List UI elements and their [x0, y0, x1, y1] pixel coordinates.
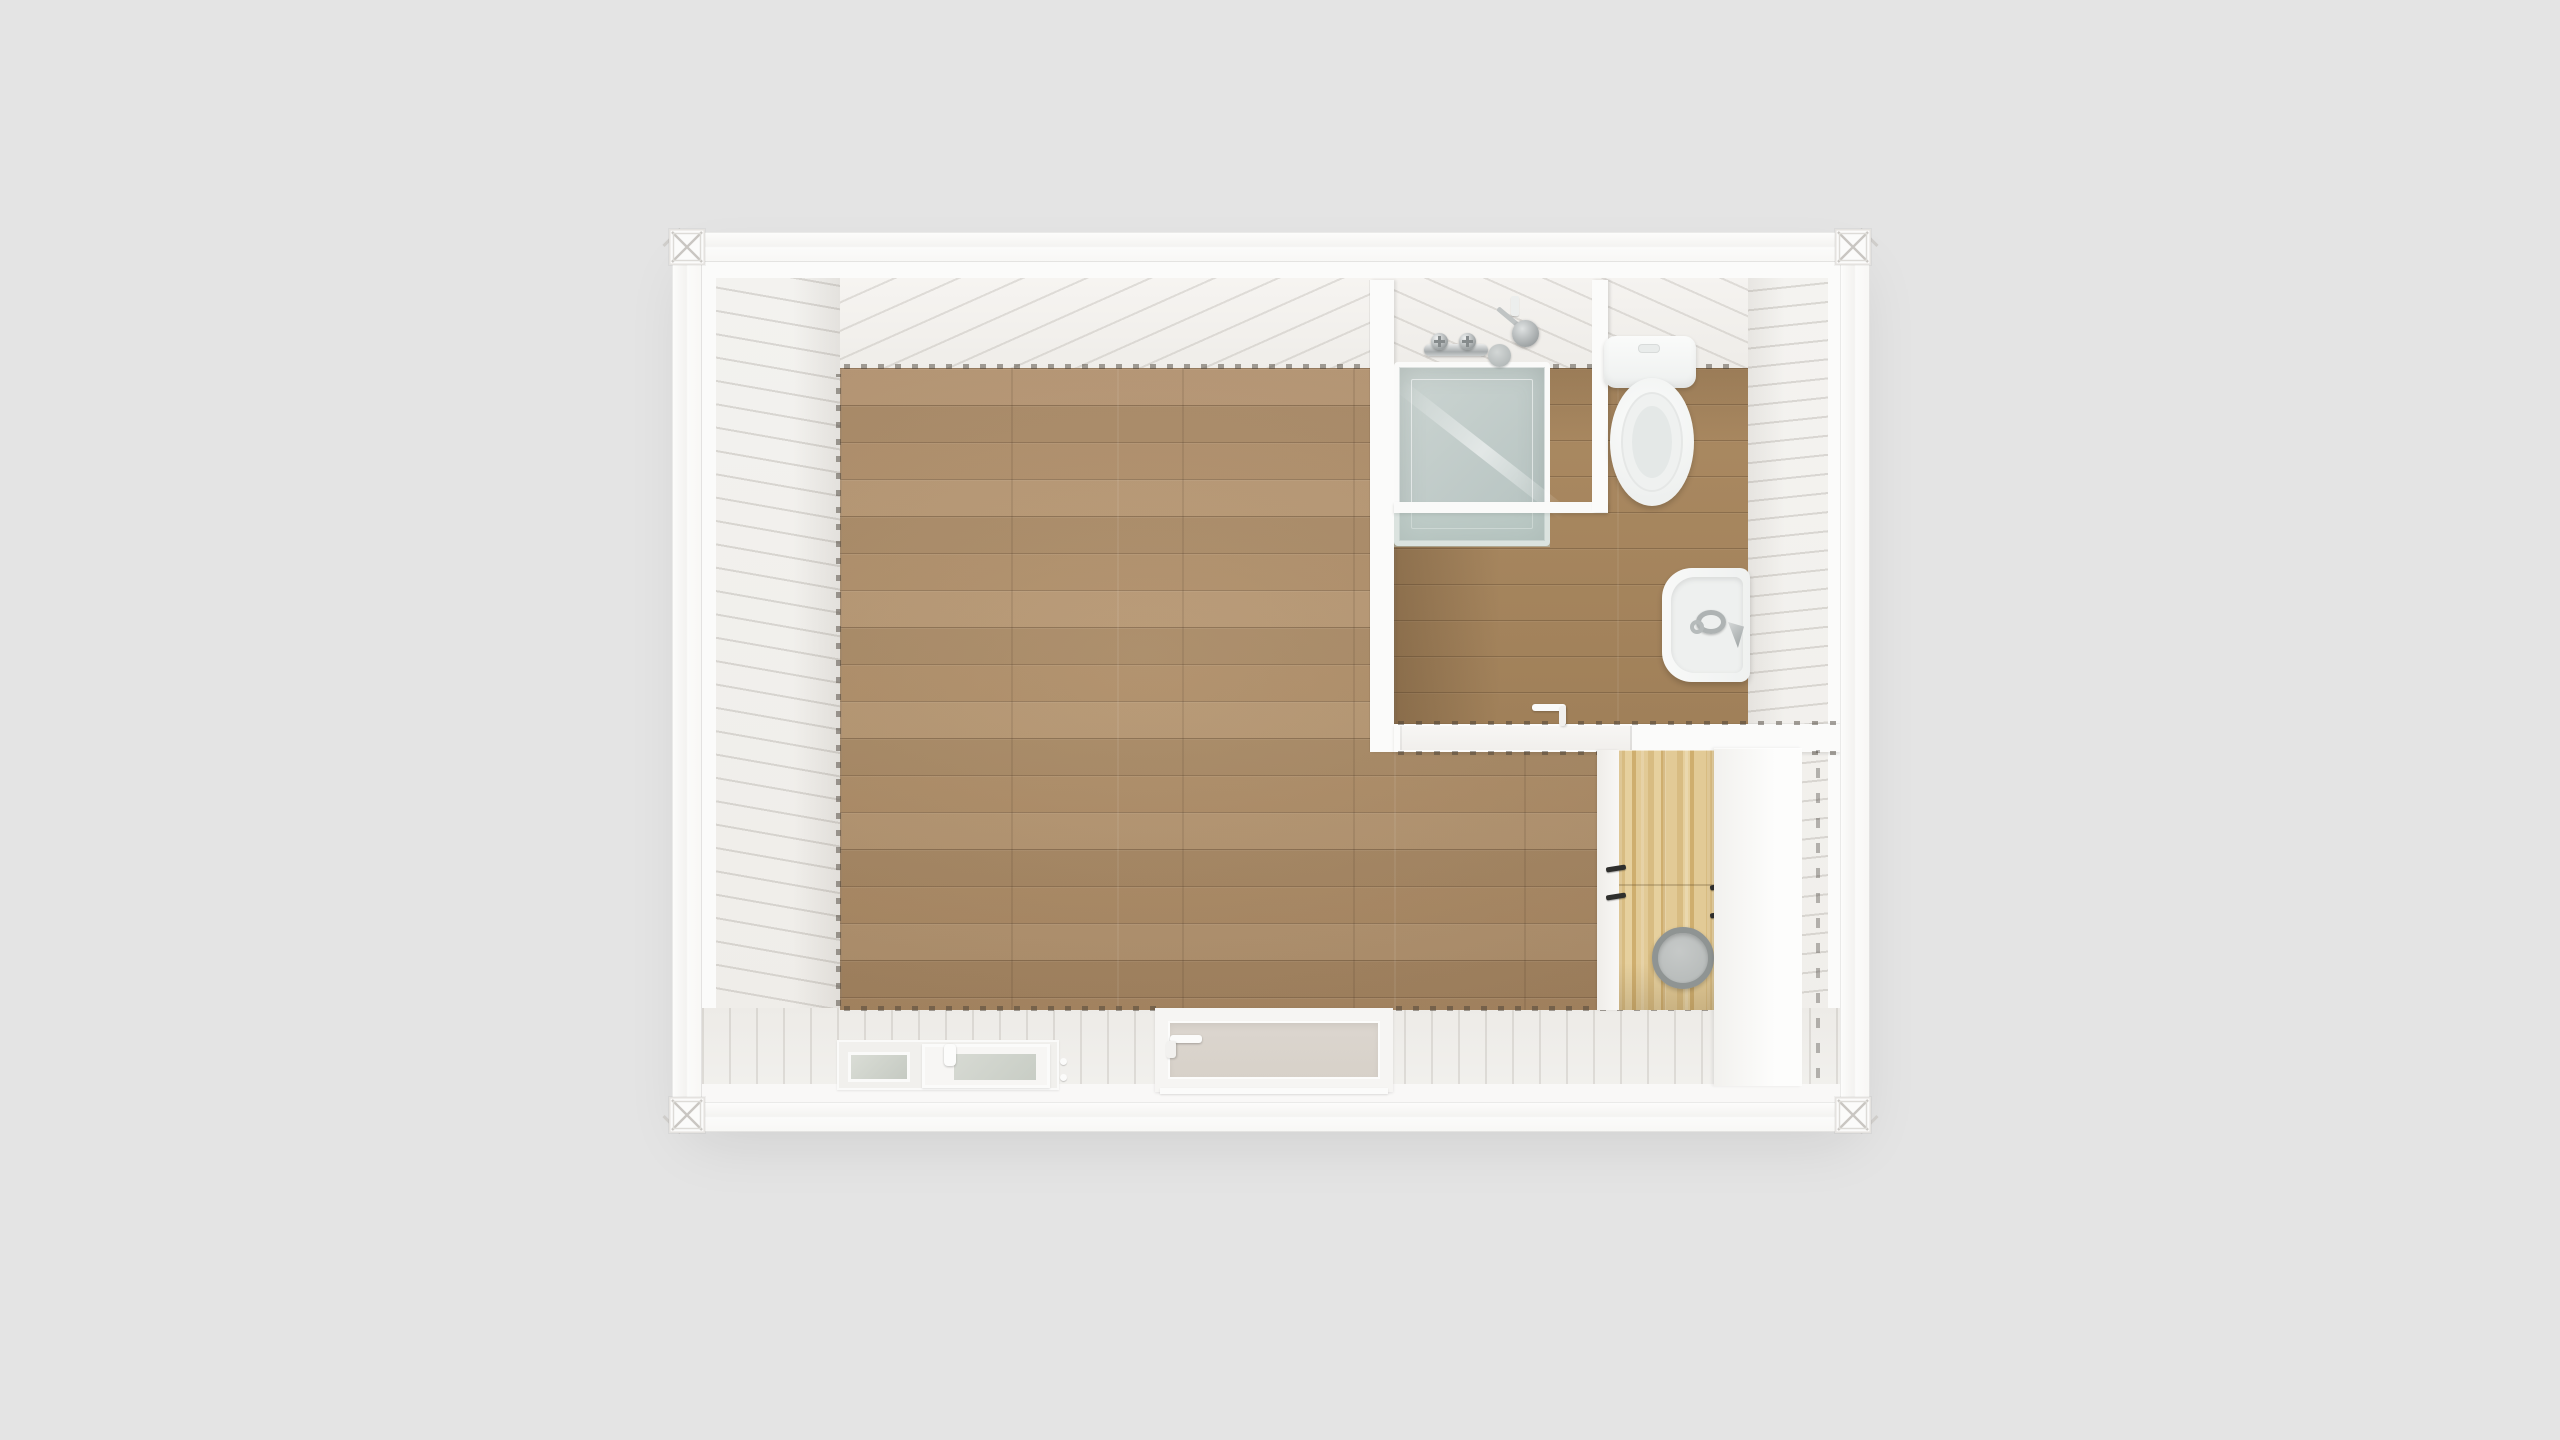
corner-casting-icon: [1835, 1097, 1871, 1133]
frame-rail-left: [672, 232, 702, 1132]
shower-mixer-knob-icon: [1431, 333, 1448, 350]
shower-mixer-knob-icon: [1459, 333, 1476, 350]
toilet-lid: [1632, 406, 1672, 478]
bathroom-left-wall: [1370, 280, 1394, 752]
bathroom-door: [1400, 726, 1632, 750]
entry-door: [1155, 1008, 1393, 1092]
window-hinge-icon: [1060, 1058, 1067, 1065]
entry-door-handle-post: [1166, 1041, 1176, 1058]
shower-glass-panel-rail: [1394, 502, 1608, 513]
basin-faucet-ring: [1690, 620, 1704, 634]
corner-casting-icon: [669, 229, 705, 265]
washing-machine-door: [1652, 927, 1714, 989]
floor-edge-ticks-bottom-left: [844, 1006, 1156, 1011]
shower-head: [1512, 320, 1539, 347]
window-fixed-pane: [848, 1052, 910, 1082]
window-handle: [944, 1044, 956, 1066]
bathroom-door-handle-stem: [1559, 706, 1566, 726]
wall-seam-ticks: [1398, 721, 1836, 725]
cabinet-side-panel: [1597, 750, 1619, 1010]
tall-white-cabinet: [1714, 748, 1802, 1086]
frame-rail-top: [672, 232, 1870, 262]
corner-casting-icon: [1835, 229, 1871, 265]
corner-casting-icon: [669, 1097, 705, 1133]
shower-diverter-knob: [1488, 344, 1511, 367]
shower-riser-mount: [1511, 296, 1519, 316]
wall-left: [702, 278, 840, 1010]
cabinet-door-seam: [1619, 884, 1715, 886]
window-sash-pane: [954, 1054, 1036, 1080]
frame-rail-right: [1840, 232, 1870, 1132]
window-hinge-icon: [1060, 1074, 1067, 1081]
shower-glass-panel: [1394, 513, 1550, 547]
shower-partition-wall: [1592, 280, 1608, 512]
render-viewport: [0, 0, 2560, 1440]
wall-panel-ticks: [1816, 750, 1820, 1078]
floor-edge-ticks-left: [836, 374, 841, 1006]
floor-edge-ticks-top: [844, 364, 1368, 369]
floor-edge-ticks-bottom-right: [1396, 1006, 1594, 1011]
frame-rail-bottom: [672, 1102, 1870, 1132]
entry-door-sill: [1160, 1088, 1388, 1094]
toilet-flush-button: [1638, 344, 1660, 353]
